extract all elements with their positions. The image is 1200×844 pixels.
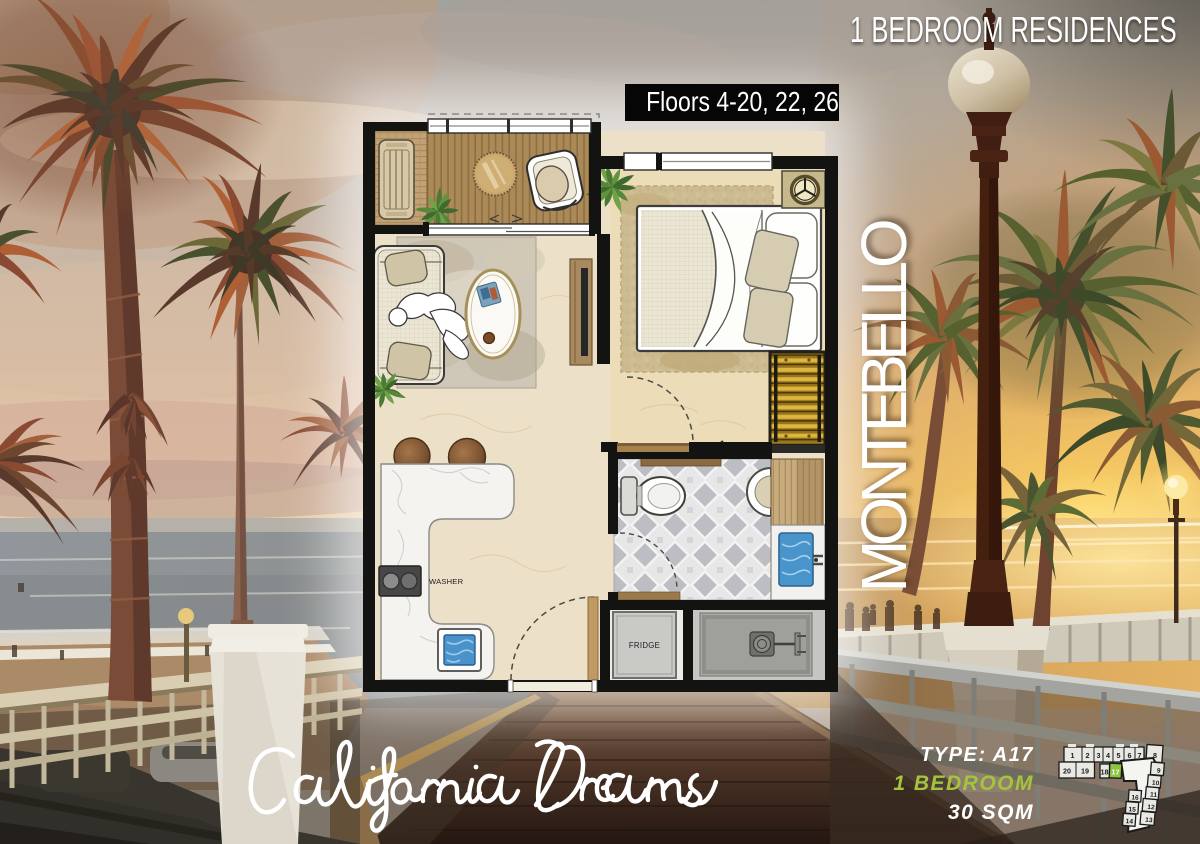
- svg-text:8: 8: [1153, 751, 1157, 760]
- svg-text:1: 1: [1071, 751, 1075, 760]
- svg-text:3: 3: [1097, 751, 1101, 760]
- svg-text:7: 7: [1138, 751, 1142, 760]
- svg-text:18: 18: [1101, 768, 1109, 777]
- svg-text:6: 6: [1128, 751, 1132, 760]
- svg-text:17: 17: [1111, 767, 1119, 776]
- svg-text:16: 16: [1131, 794, 1139, 802]
- svg-text:5: 5: [1117, 751, 1121, 760]
- svg-text:2: 2: [1086, 751, 1090, 760]
- svg-text:WASHER: WASHER: [429, 577, 464, 586]
- svg-text:20: 20: [1063, 767, 1071, 776]
- svg-text:12: 12: [1147, 804, 1155, 812]
- svg-text:11: 11: [1150, 792, 1158, 800]
- svg-text:14: 14: [1125, 818, 1133, 826]
- svg-text:FRIDGE: FRIDGE: [629, 641, 660, 650]
- svg-text:13: 13: [1145, 817, 1153, 825]
- svg-text:19: 19: [1081, 767, 1089, 776]
- svg-text:10: 10: [1152, 780, 1160, 788]
- svg-text:4: 4: [1106, 751, 1110, 760]
- svg-text:15: 15: [1128, 806, 1136, 814]
